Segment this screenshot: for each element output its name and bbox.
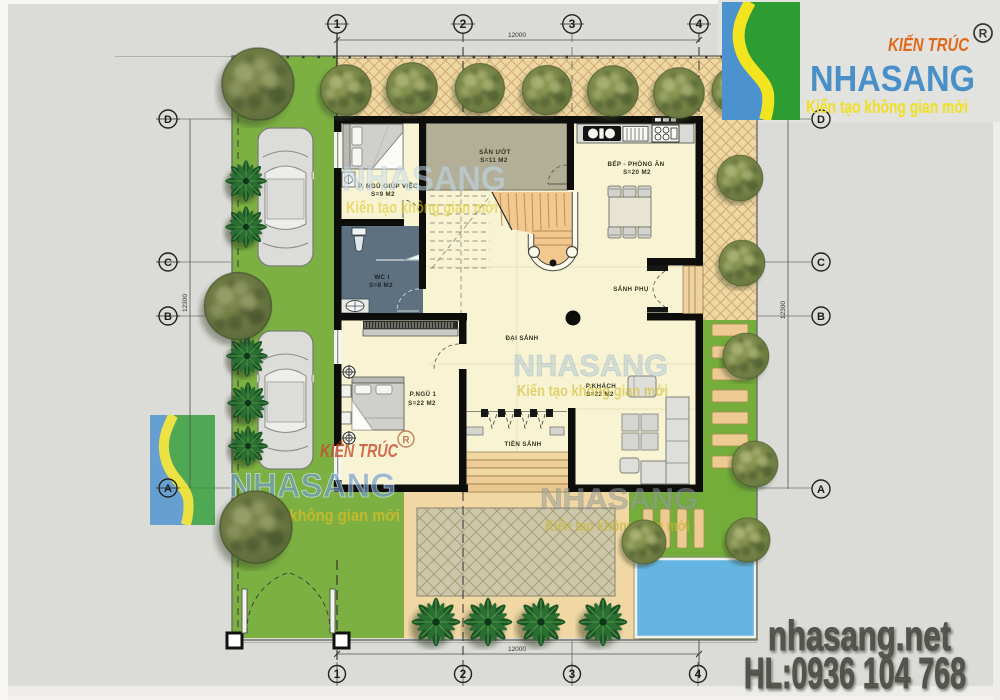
svg-text:4: 4 xyxy=(696,17,703,31)
svg-text:A: A xyxy=(164,483,172,495)
svg-text:12300: 12300 xyxy=(780,301,787,319)
svg-text:A: A xyxy=(817,484,825,496)
svg-text:TIỀN SẢNH: TIỀN SẢNH xyxy=(505,441,542,448)
svg-text:S=8 M2: S=8 M2 xyxy=(369,282,393,289)
svg-text:R: R xyxy=(402,435,410,446)
svg-text:D: D xyxy=(164,114,172,126)
svg-text:P.NGỦ 1: P.NGỦ 1 xyxy=(410,391,437,398)
svg-text:B: B xyxy=(817,311,825,323)
svg-text:2: 2 xyxy=(460,17,467,31)
svg-text:S=22 M2: S=22 M2 xyxy=(408,400,436,407)
svg-text:Kiến tạo không gian mới: Kiến tạo không gian mới xyxy=(806,97,968,117)
svg-text:HL:0936 104 768: HL:0936 104 768 xyxy=(744,649,966,698)
svg-text:Kiến tạo không gian mới: Kiến tạo không gian mới xyxy=(346,199,498,217)
svg-text:12000: 12000 xyxy=(508,32,526,39)
svg-text:1: 1 xyxy=(334,17,341,31)
svg-text:SẢNH PHỤ: SẢNH PHỤ xyxy=(613,286,649,293)
svg-text:WC I: WC I xyxy=(374,274,389,281)
svg-text:NHASANG: NHASANG xyxy=(810,58,975,99)
svg-text:NHASANG: NHASANG xyxy=(342,160,506,198)
svg-text:12300: 12300 xyxy=(182,294,189,312)
svg-text:3: 3 xyxy=(569,669,575,681)
svg-text:R: R xyxy=(979,27,988,41)
svg-text:NHASANG: NHASANG xyxy=(513,348,668,383)
svg-text:B: B xyxy=(164,311,172,323)
svg-text:2: 2 xyxy=(460,669,466,681)
svg-text:12000: 12000 xyxy=(508,646,526,653)
svg-text:C: C xyxy=(817,257,825,269)
svg-text:SÂN ƯỚT: SÂN ƯỚT xyxy=(479,148,511,156)
svg-text:C: C xyxy=(164,257,172,269)
svg-text:BẾP - PHÒNG ĂN: BẾP - PHÒNG ĂN xyxy=(607,160,664,168)
svg-text:Kiến tạo không gian mới: Kiến tạo không gian mới xyxy=(545,518,690,535)
svg-text:4: 4 xyxy=(695,669,702,681)
svg-text:ĐẠI SẢNH: ĐẠI SẢNH xyxy=(505,335,538,342)
svg-text:KIẾN TRÚC: KIẾN TRÚC xyxy=(888,34,970,55)
svg-text:NHASANG: NHASANG xyxy=(540,483,698,516)
svg-text:KIẾN TRÚC: KIẾN TRÚC xyxy=(320,440,399,461)
svg-text:3: 3 xyxy=(569,17,576,31)
svg-text:Kiến tạo không gian mới: Kiến tạo không gian mới xyxy=(517,383,668,400)
svg-text:S=20 M2: S=20 M2 xyxy=(623,169,651,176)
svg-text:1: 1 xyxy=(334,669,341,681)
